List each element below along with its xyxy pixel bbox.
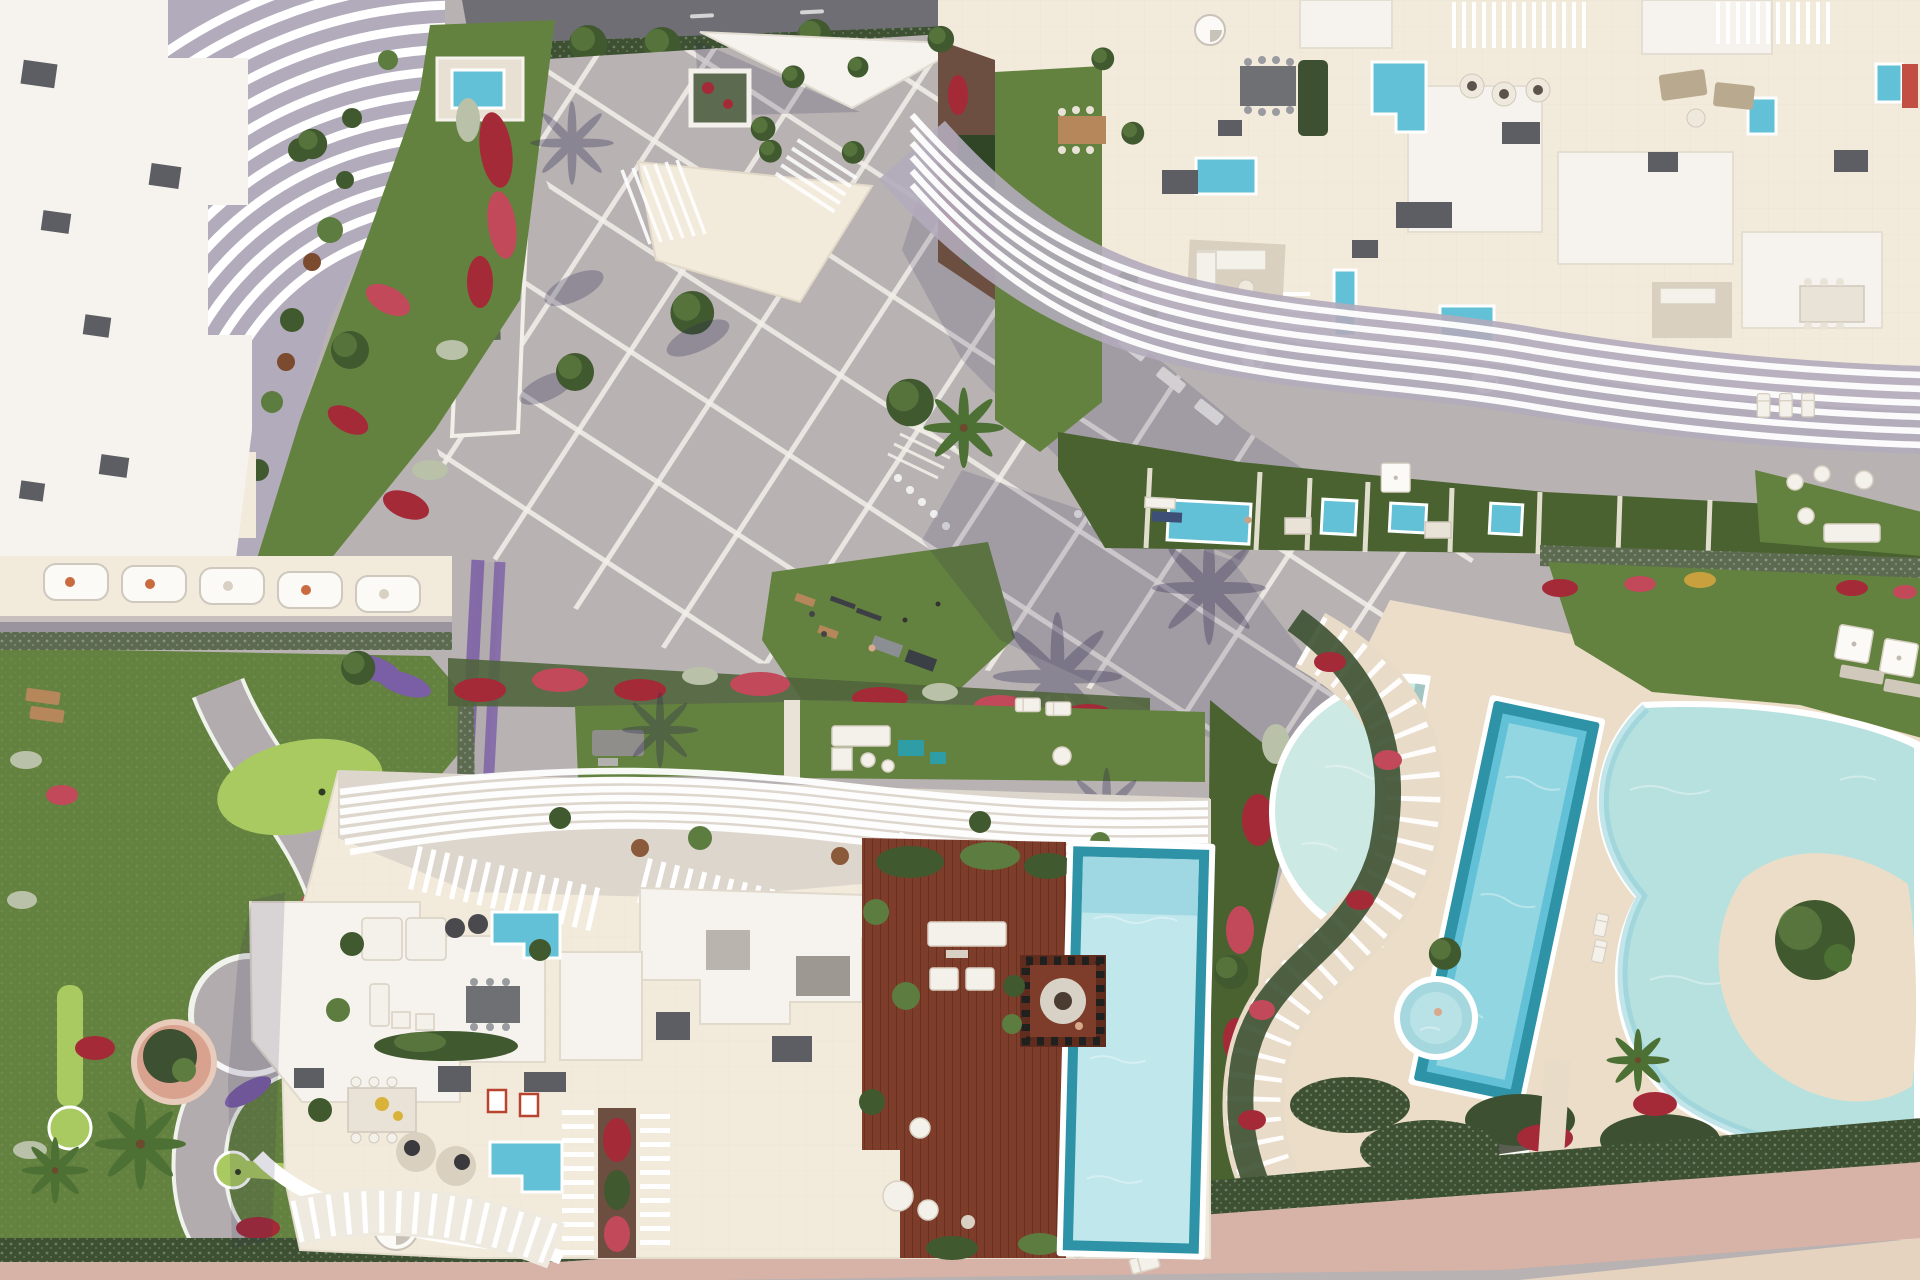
garden-dining-table <box>1058 116 1106 144</box>
sun-lawn-furniture <box>1757 393 1814 417</box>
teal-daybed <box>898 740 924 756</box>
garden-plunge-pool <box>452 70 504 108</box>
masterplan-canvas <box>0 0 1920 1280</box>
northwest-building-south-balconies <box>0 556 452 650</box>
deck-sofa <box>928 922 1006 946</box>
golfer <box>319 789 326 796</box>
rooftop-infinity-pool <box>1057 840 1216 1260</box>
red-chair <box>488 1090 506 1112</box>
white-sofa <box>832 726 890 746</box>
square-planter <box>691 71 749 125</box>
aerial-render <box>0 0 1920 1280</box>
person <box>1075 1022 1083 1030</box>
dark-dining-table <box>466 986 520 1023</box>
round-spa-pool <box>1394 976 1478 1060</box>
swimmer <box>1434 1008 1442 1016</box>
red-louver-object <box>1902 64 1918 108</box>
